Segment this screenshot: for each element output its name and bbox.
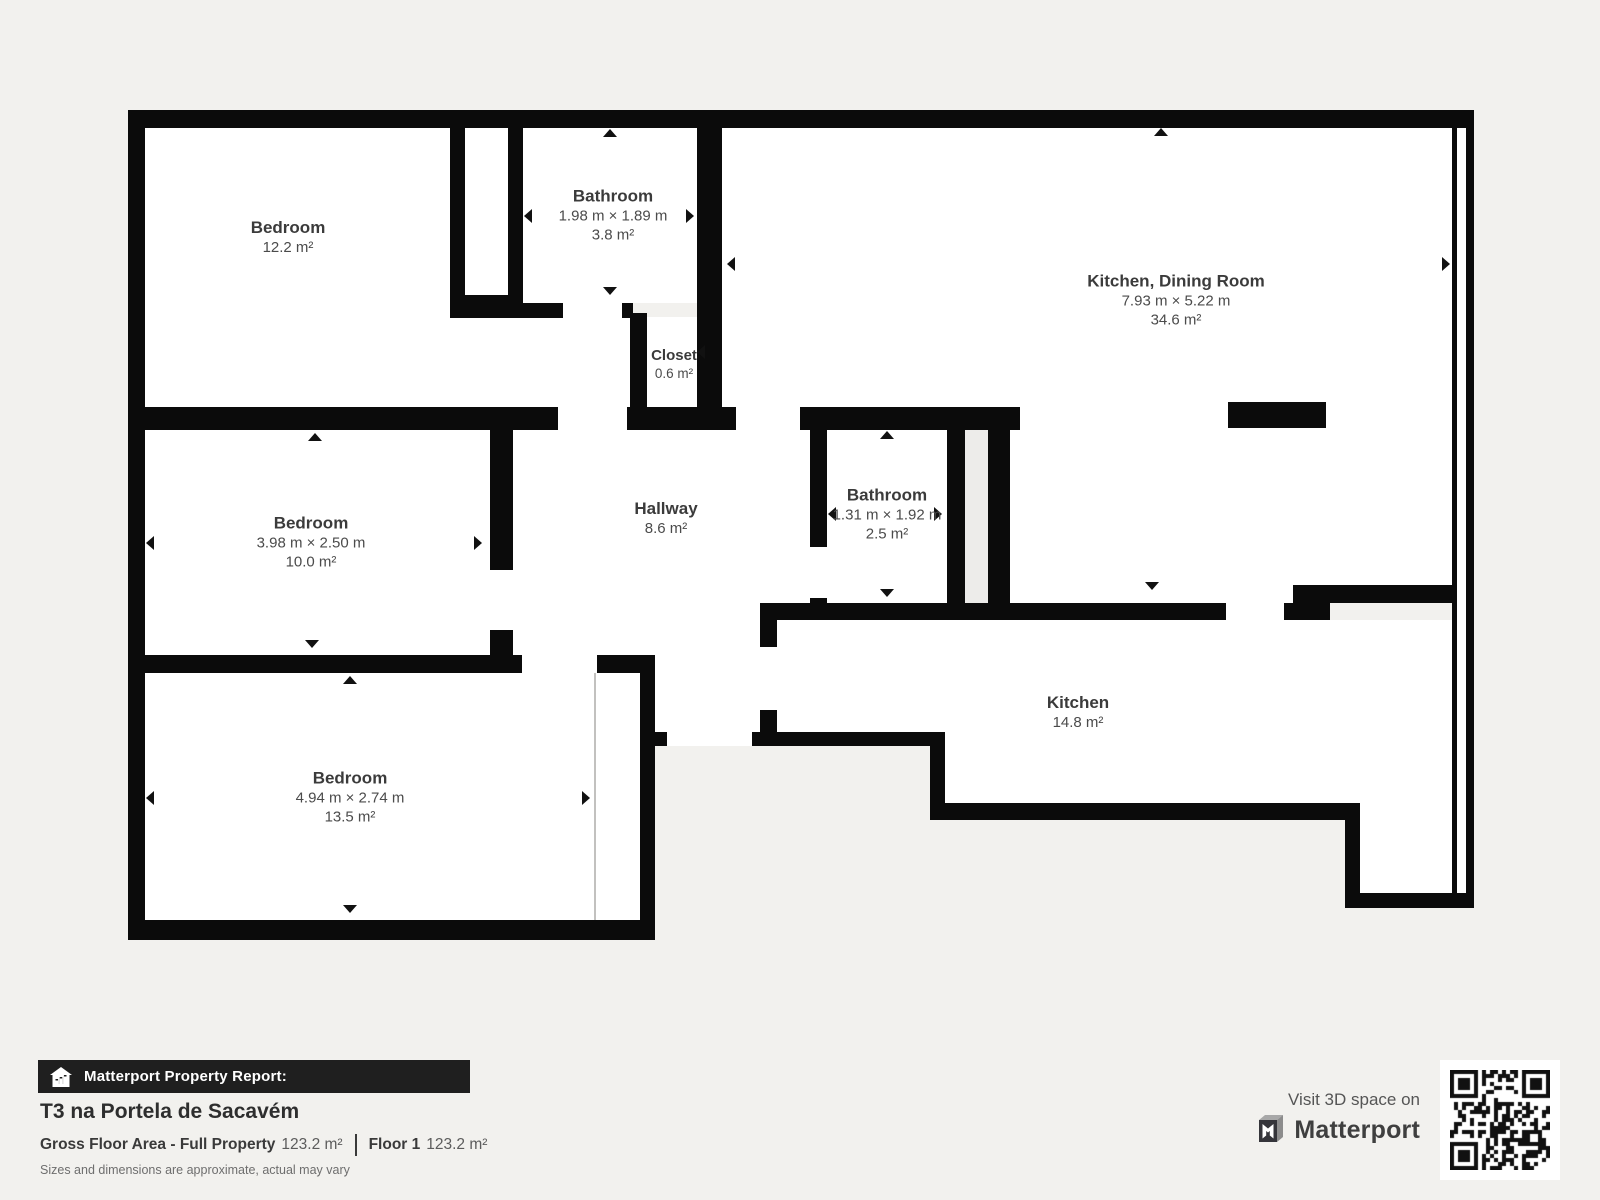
- room-name: Bedroom: [296, 768, 405, 789]
- gross-floor-area-label: Gross Floor Area - Full Property: [40, 1136, 275, 1154]
- visit-3d-text: Visit 3D space on: [1288, 1090, 1420, 1110]
- matterport-mark-icon: [1256, 1112, 1286, 1149]
- arrow-right-icon: [474, 536, 482, 550]
- wall: [947, 407, 965, 620]
- stats-divider: [355, 1134, 357, 1156]
- wall: [630, 313, 647, 407]
- qr-code: [1440, 1060, 1560, 1180]
- wall: [128, 110, 1474, 128]
- report-bar-label: Matterport Property Report:: [84, 1068, 287, 1085]
- room-area: 14.8 m²: [1047, 713, 1109, 732]
- door-opening: [667, 732, 752, 746]
- room-label-closet: Closet 0.6 m²: [651, 347, 697, 383]
- wall: [1466, 110, 1474, 908]
- room-dimensions: 4.94 m × 2.74 m: [296, 789, 405, 808]
- room-kitchen-dining: [1010, 407, 1452, 603]
- room-name: Kitchen: [1047, 692, 1109, 713]
- report-bar: Matterport Property Report:: [38, 1060, 470, 1093]
- wall: [988, 407, 1010, 620]
- arrow-up-icon: [603, 129, 617, 137]
- room-label-kitchen-dining: Kitchen, Dining Room 7.93 m × 5.22 m 34.…: [1087, 271, 1265, 330]
- door-opening: [736, 407, 800, 430]
- window-channel: [1457, 128, 1466, 893]
- arrow-left-icon: [146, 791, 154, 805]
- arrow-left-icon: [524, 209, 532, 223]
- arrow-right-icon: [1442, 257, 1450, 271]
- room-name: Bedroom: [251, 217, 326, 238]
- wall: [490, 430, 513, 673]
- property-title: T3 na Portela de Sacavém: [40, 1100, 299, 1124]
- wall: [1345, 893, 1474, 908]
- room-dimensions: 1.98 m × 1.89 m: [559, 207, 668, 226]
- duct-shaft: [965, 430, 988, 603]
- arrow-up-icon: [343, 676, 357, 684]
- arrow-down-icon: [603, 287, 617, 295]
- room-name: Bathroom: [559, 186, 668, 207]
- counter-feature: [1228, 402, 1326, 428]
- room-area: 10.0 m²: [257, 553, 366, 572]
- arrow-down-icon: [1145, 582, 1159, 590]
- arrow-down-icon: [343, 905, 357, 913]
- arrow-up-icon: [880, 431, 894, 439]
- door-opening: [522, 655, 597, 673]
- door-opening: [1226, 603, 1284, 620]
- wall: [128, 920, 655, 940]
- room-bedroom-1: [145, 128, 450, 407]
- room-label-kitchen: Kitchen 14.8 m²: [1047, 692, 1109, 732]
- room-name: Hallway: [634, 498, 697, 519]
- door-opening: [490, 570, 513, 630]
- arrow-left-icon: [727, 257, 735, 271]
- room-area: 0.6 m²: [651, 365, 697, 383]
- room-area: 13.5 m²: [296, 808, 405, 827]
- floorplan-page: Bedroom 12.2 m² Bathroom 1.98 m × 1.89 m…: [0, 0, 1600, 1200]
- room-hallway: [655, 620, 760, 732]
- arrow-down-icon: [305, 640, 319, 648]
- room-kitchen: [1360, 803, 1452, 893]
- wall: [697, 110, 722, 430]
- room-label-bathroom-1: Bathroom 1.98 m × 1.89 m 3.8 m²: [559, 186, 668, 245]
- room-area: 34.6 m²: [1087, 311, 1265, 330]
- room-area: 8.6 m²: [634, 519, 697, 538]
- wall: [128, 110, 145, 940]
- door-opening: [760, 647, 777, 710]
- room-label-bathroom-2: Bathroom 1.31 m × 1.92 m 2.5 m²: [833, 485, 942, 544]
- room-area: 2.5 m²: [833, 525, 942, 544]
- arrow-up-icon: [308, 433, 322, 441]
- arrow-down-icon: [880, 589, 894, 597]
- room-kitchen: [945, 732, 1452, 803]
- room-name: Kitchen, Dining Room: [1087, 271, 1265, 292]
- floorplan: [0, 0, 1600, 1200]
- door-opening: [563, 303, 622, 318]
- wall: [640, 658, 655, 940]
- room-label-bedroom-2: Bedroom 3.98 m × 2.50 m 10.0 m²: [257, 513, 366, 572]
- room-name: Bathroom: [833, 485, 942, 506]
- room-name: Bedroom: [257, 513, 366, 534]
- room-area: 3.8 m²: [559, 226, 668, 245]
- floor-value: 123.2 m²: [426, 1136, 487, 1154]
- gross-floor-area-value: 123.2 m²: [281, 1136, 342, 1154]
- wall: [1293, 585, 1452, 603]
- door-opening: [810, 547, 827, 598]
- room-kitchen-dining: [722, 128, 1452, 407]
- wall: [450, 110, 465, 317]
- wall-niche: [465, 128, 508, 303]
- arrow-left-icon: [146, 536, 154, 550]
- room-area: 12.2 m²: [251, 238, 326, 257]
- room-dimensions: 3.98 m × 2.50 m: [257, 534, 366, 553]
- wardrobe-divider: [594, 673, 596, 920]
- house-chart-icon: [50, 1067, 72, 1087]
- matterport-wordmark: Matterport: [1294, 1116, 1420, 1145]
- arrow-right-icon: [582, 791, 590, 805]
- room-dimensions: 1.31 m × 1.92 m: [833, 506, 942, 525]
- room-kitchen: [777, 620, 1452, 732]
- wall: [508, 110, 523, 317]
- floor-label: Floor 1: [369, 1136, 421, 1154]
- wall: [930, 803, 1358, 820]
- arrow-left-icon: [697, 345, 705, 359]
- floor-area-stats: Gross Floor Area - Full Property 123.2 m…: [40, 1134, 487, 1156]
- room-name: Closet: [651, 347, 697, 365]
- arrow-right-icon: [686, 209, 694, 223]
- room-label-hallway: Hallway 8.6 m²: [634, 498, 697, 538]
- wall: [1452, 118, 1457, 893]
- arrow-up-icon: [1154, 128, 1168, 136]
- matterport-logo[interactable]: Matterport: [1256, 1112, 1420, 1149]
- room-vestibule: [450, 318, 633, 407]
- door-opening: [558, 407, 627, 430]
- disclaimer-text: Sizes and dimensions are approximate, ac…: [40, 1163, 350, 1177]
- room-dimensions: 7.93 m × 5.22 m: [1087, 292, 1265, 311]
- room-label-bedroom-1: Bedroom 12.2 m²: [251, 217, 326, 257]
- room-label-bedroom-3: Bedroom 4.94 m × 2.74 m 13.5 m²: [296, 768, 405, 827]
